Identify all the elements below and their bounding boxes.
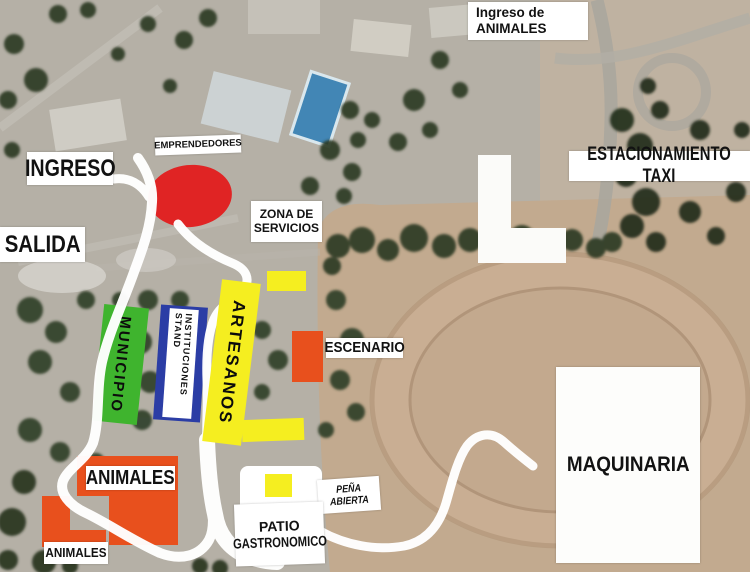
patio-gastronomico-label-box: PATIO GASTRONOMICO <box>234 501 325 566</box>
ingreso-label: INGRESO <box>25 155 116 183</box>
animales-main-label: ANIMALES <box>86 467 175 490</box>
escenario-label-box: ESCENARIO <box>326 338 403 358</box>
estacionamiento-taxi-label: ESTACIONAMIENTO TAXI <box>588 144 732 188</box>
artesanos-label: ARTESANOS <box>214 299 249 425</box>
ingreso-animales-line2: ANIMALES <box>476 21 547 37</box>
salida-label: SALIDA <box>5 231 81 259</box>
animales-small-label: ANIMALES <box>45 546 106 561</box>
salida-label-box: SALIDA <box>0 227 85 262</box>
pena-abierta-label-box: PEÑA ABIERTA <box>317 476 381 514</box>
animales-small-label-box: ANIMALES <box>44 542 108 564</box>
fairground-satellite-map: MUNICIPIO STAND INSTITUCIONES ARTESANOS <box>0 0 750 572</box>
yellow-zone-bottom <box>265 474 292 497</box>
ingreso-animales-line1: Ingreso de <box>476 5 547 21</box>
zona-servicios-line2: SERVICIOS <box>254 222 319 236</box>
ingreso-animales-label-box: Ingreso de ANIMALES <box>468 2 588 40</box>
animales-main-label-box: ANIMALES <box>86 466 175 490</box>
l-shaped-area-horizontal <box>478 228 566 263</box>
ingreso-label-box: INGRESO <box>27 152 113 185</box>
zona-servicios-label-box: ZONA DE SERVICIOS <box>251 201 322 242</box>
maquinaria-area-box: MAQUINARIA <box>556 367 700 563</box>
zona-servicios-line1: ZONA DE <box>254 208 319 222</box>
emprendedores-label: EMPRENDEDORES <box>154 138 242 152</box>
escenario-label: ESCENARIO <box>324 339 404 356</box>
emprendedores-label-box: EMPRENDEDORES <box>155 135 242 156</box>
estacionamiento-taxi-label-box: ESTACIONAMIENTO TAXI <box>569 151 750 181</box>
pena-abierta-label: PEÑA ABIERTA <box>322 481 376 509</box>
maquinaria-label: MAQUINARIA <box>567 453 690 477</box>
patio-label-line2: GASTRONOMICO <box>233 532 327 551</box>
